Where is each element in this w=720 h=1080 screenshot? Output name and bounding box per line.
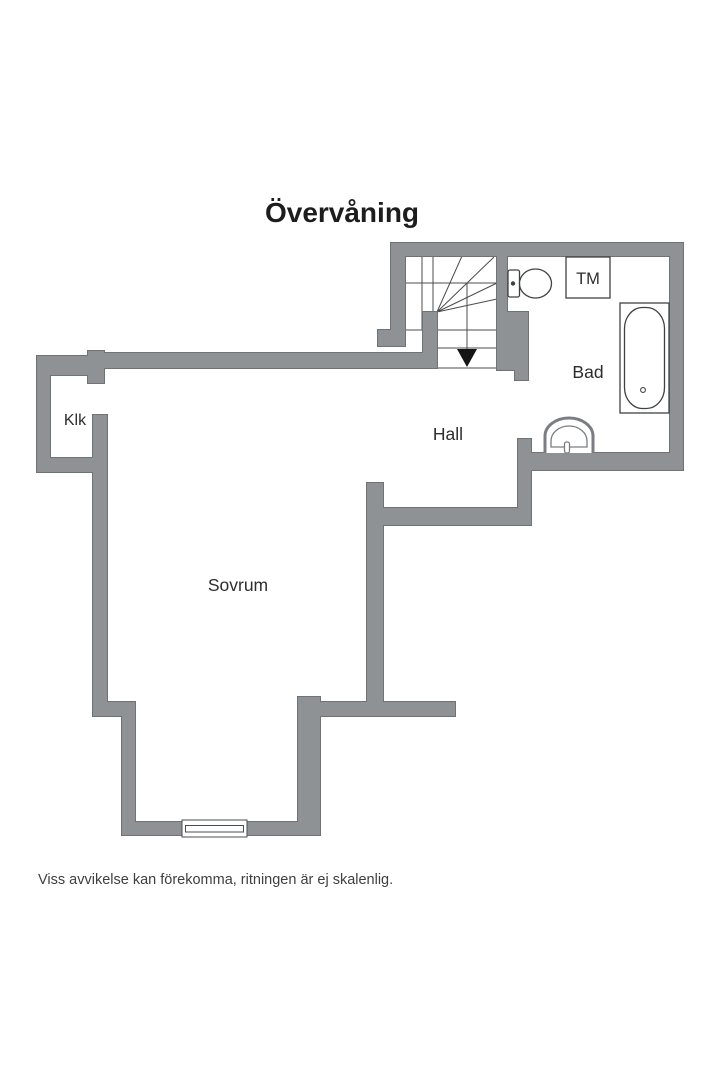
floor-plan: Övervåning TM <box>0 0 720 1080</box>
washing-machine-label: TM <box>576 270 600 288</box>
stair-floor <box>405 256 497 368</box>
staircase <box>405 256 497 368</box>
room-label-bathroom: Bad <box>572 362 603 382</box>
sink-icon <box>545 418 593 453</box>
washing-machine: TM <box>566 257 610 298</box>
room-label-bedroom: Sovrum <box>208 575 268 595</box>
bathtub-icon <box>620 303 669 413</box>
floor-plan-page: Övervåning TM <box>0 0 720 1080</box>
disclaimer-text: Viss avvikelse kan förekomma, ritningen … <box>38 872 393 888</box>
room-label-hall: Hall <box>433 424 463 444</box>
walls <box>37 243 683 835</box>
window-icon <box>182 820 247 837</box>
room-label-closet: Klk <box>64 412 87 429</box>
toilet-icon <box>508 269 552 298</box>
page-title: Övervåning <box>265 197 419 228</box>
